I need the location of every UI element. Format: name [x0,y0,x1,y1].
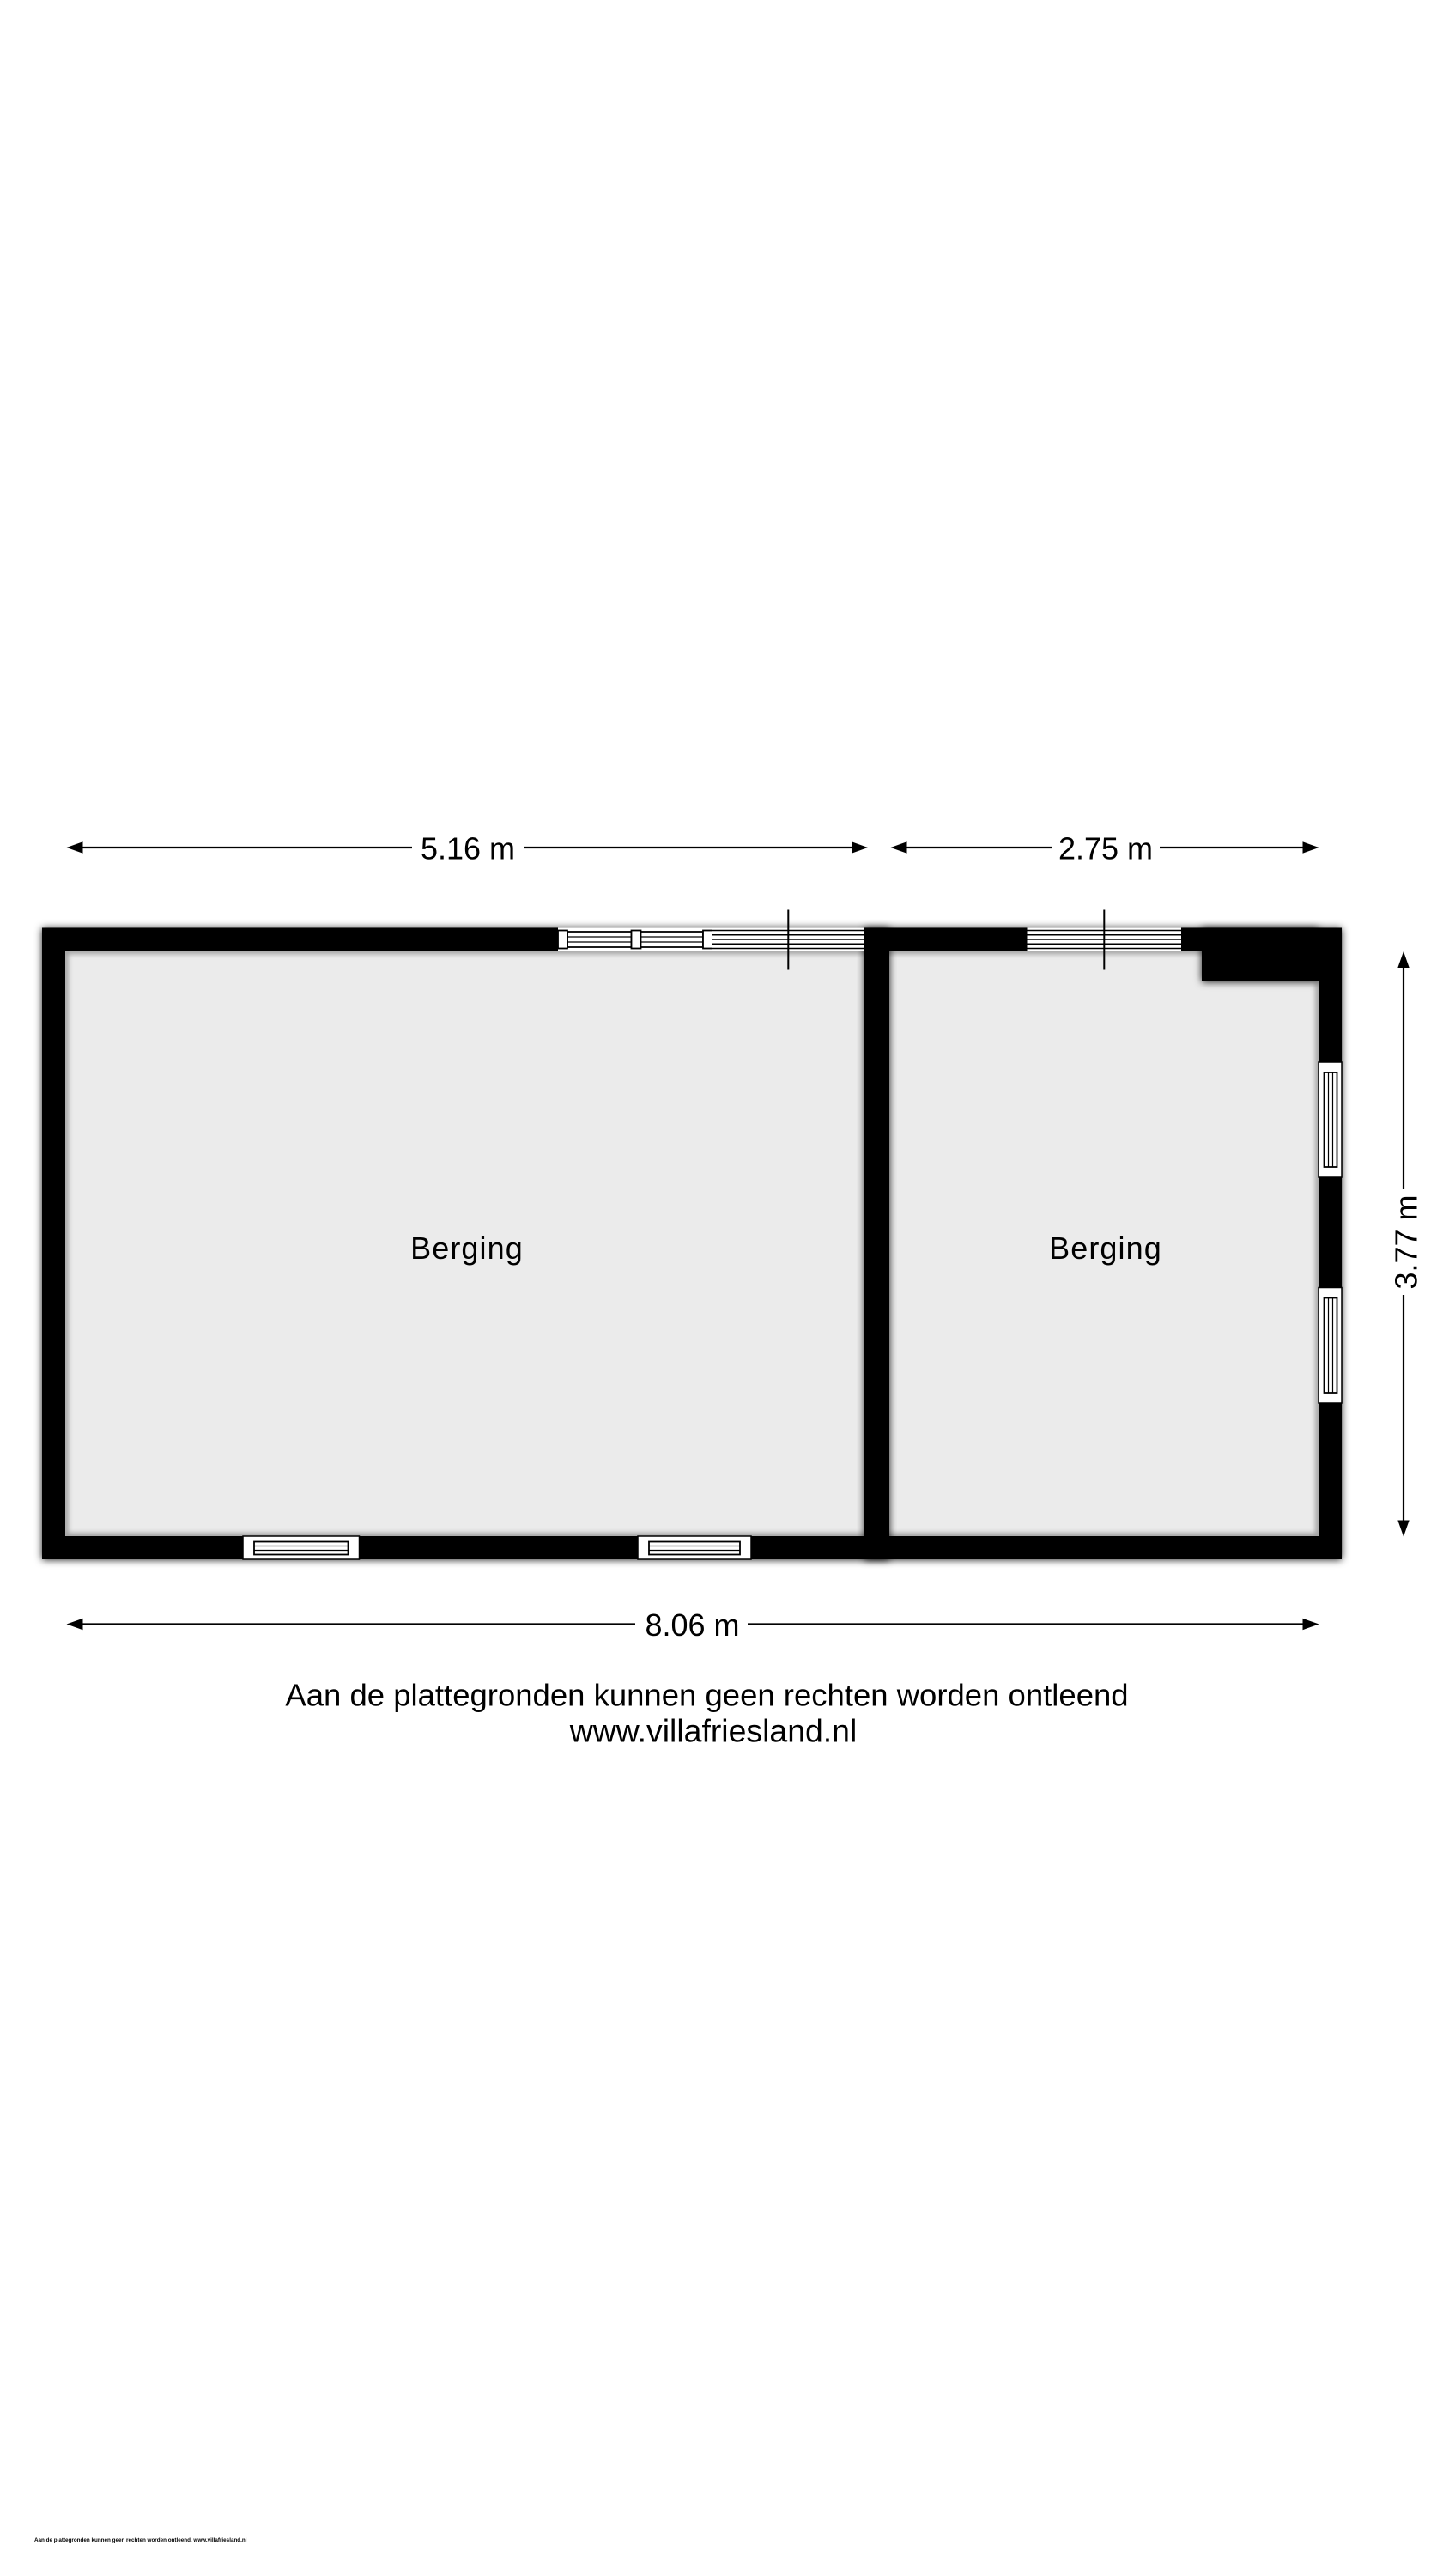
svg-text:5.16 m: 5.16 m [421,830,515,866]
svg-text:2.75 m: 2.75 m [1058,830,1153,866]
svg-text:3.77 m: 3.77 m [1389,1194,1424,1289]
svg-text:8.06 m: 8.06 m [645,1607,739,1643]
svg-text:Aan de plattegronden kunnen ge: Aan de plattegronden kunnen geen rechten… [285,1678,1128,1713]
svg-text:Berging: Berging [410,1230,524,1266]
svg-text:www.villafriesland.nl: www.villafriesland.nl [569,1713,858,1749]
svg-text:Berging: Berging [1049,1230,1162,1266]
svg-text:Aan de plattegronden kunnen ge: Aan de plattegronden kunnen geen rechten… [34,2537,247,2543]
